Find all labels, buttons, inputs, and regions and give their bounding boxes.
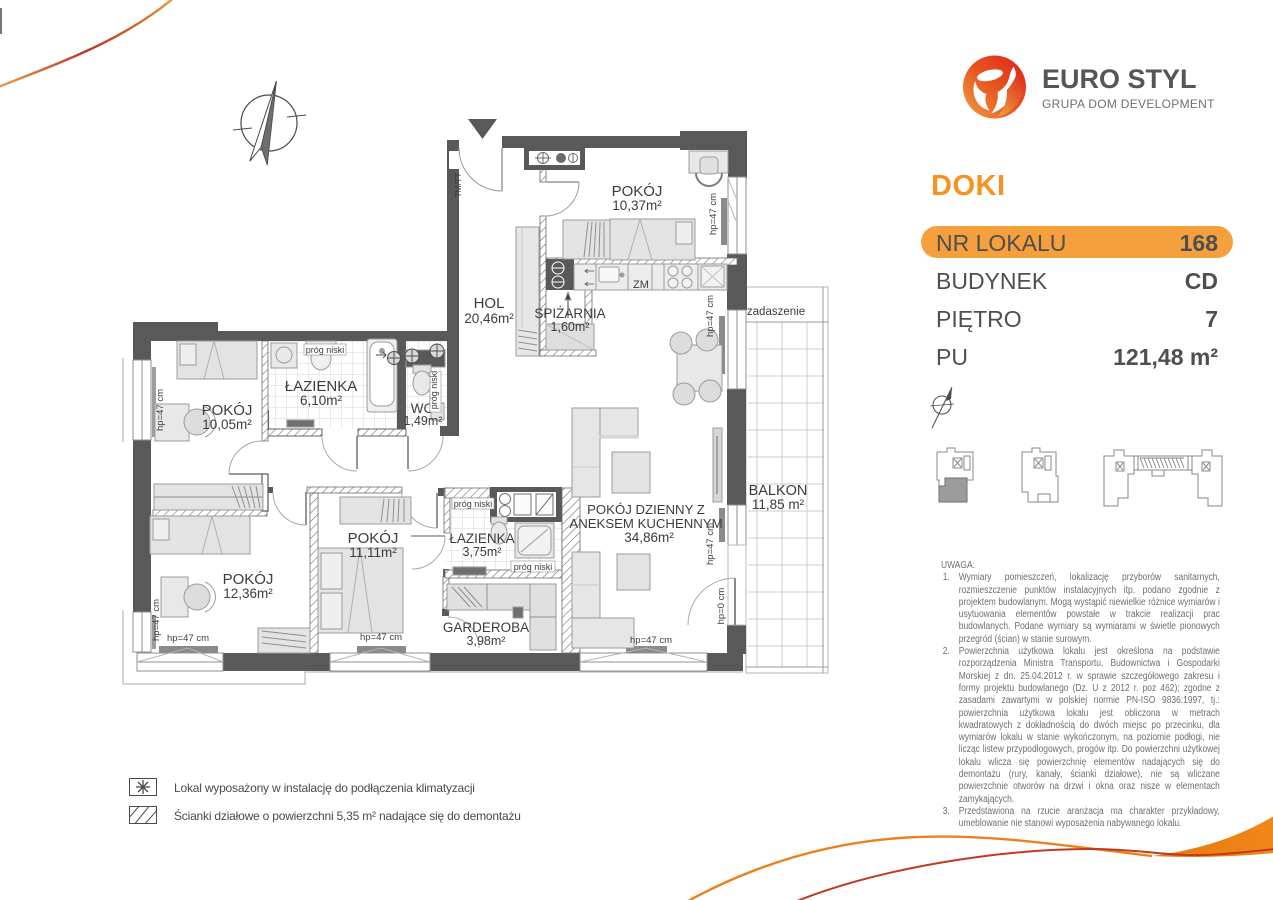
svg-text:hp=0 cm: hp=0 cm	[716, 588, 727, 625]
svg-text:HOL: HOL	[474, 295, 505, 312]
svg-text:próg niski: próg niski	[454, 499, 493, 509]
svg-text:34,86m²: 34,86m²	[624, 530, 674, 545]
svg-text:10,05m²: 10,05m²	[202, 417, 252, 432]
svg-text:hp=47 cm: hp=47 cm	[708, 193, 719, 235]
svg-text:SPIŻARNIA: SPIŻARNIA	[534, 306, 605, 321]
svg-text:11,11m²: 11,11m²	[349, 545, 397, 560]
svg-text:hp=47 cm: hp=47 cm	[705, 523, 716, 565]
svg-text:zadaszenie: zadaszenie	[747, 306, 805, 318]
svg-text:10,37m²: 10,37m²	[612, 198, 662, 213]
svg-text:1,49m²: 1,49m²	[404, 414, 443, 428]
svg-text:hp=47 cm: hp=47 cm	[151, 599, 162, 641]
svg-text:hp=47 cm: hp=47 cm	[155, 389, 166, 431]
svg-text:próg niski: próg niski	[306, 345, 345, 355]
svg-text:11,85 m²: 11,85 m²	[752, 497, 805, 512]
svg-text:hp=47 cm: hp=47 cm	[167, 633, 209, 644]
svg-text:3,75m²: 3,75m²	[463, 545, 502, 559]
svg-text:POKÓJ DZIENNY Z: POKÓJ DZIENNY Z	[587, 502, 705, 517]
svg-text:GARDEROBA: GARDEROBA	[443, 620, 529, 635]
svg-text:próg niski: próg niski	[514, 562, 553, 572]
svg-text:hp=47 cm: hp=47 cm	[360, 632, 402, 643]
svg-text:1,60m²: 1,60m²	[551, 320, 590, 334]
svg-text:ŁAZIENKA: ŁAZIENKA	[449, 531, 514, 546]
svg-text:12,36m²: 12,36m²	[223, 586, 273, 601]
svg-text:ZM: ZM	[633, 279, 649, 291]
svg-text:hp=47 cm: hp=47 cm	[630, 635, 672, 646]
svg-text:3,98m²: 3,98m²	[467, 634, 506, 648]
svg-text:20,46m²: 20,46m²	[464, 311, 514, 326]
svg-text:próg niski: próg niski	[429, 371, 439, 410]
svg-text:hp=47 cm: hp=47 cm	[705, 295, 716, 337]
svg-text:6,10m²: 6,10m²	[300, 393, 343, 408]
svg-text:TM/TT: TM/TT	[453, 172, 463, 197]
svg-text:ANEKSEM KUCHENNYM: ANEKSEM KUCHENNYM	[569, 516, 722, 531]
